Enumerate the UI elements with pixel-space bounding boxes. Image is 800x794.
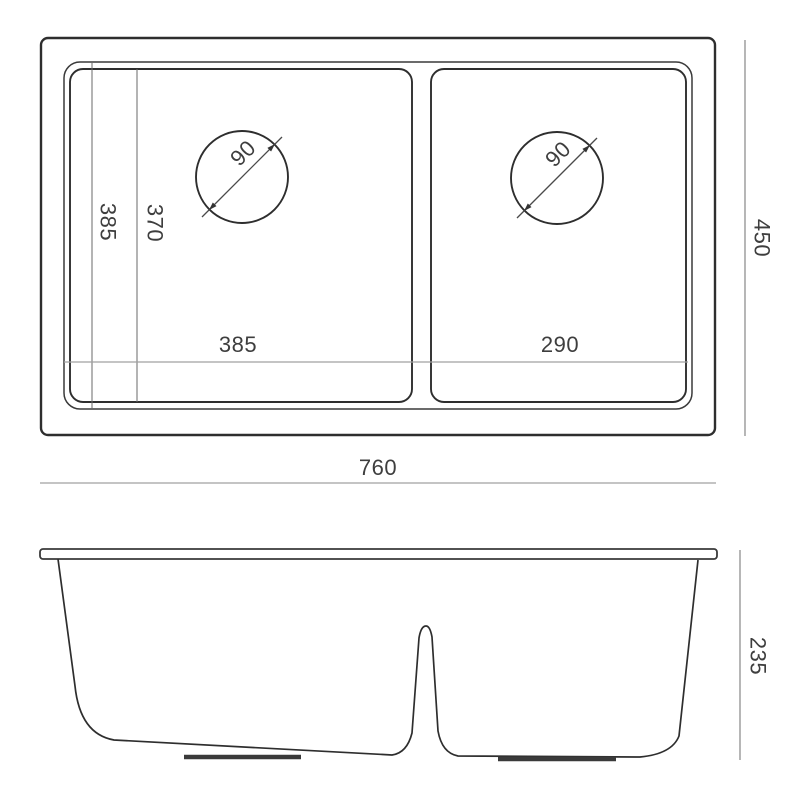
- bowl-depth-label: 370: [143, 204, 168, 242]
- bowl-height-label: 235: [746, 637, 771, 675]
- right-bowl-width-label: 290: [541, 332, 579, 357]
- sink-technical-drawing: 385 370 385 290 90 90 450 760 235: [0, 0, 800, 794]
- overall-depth-label: 450: [750, 219, 775, 257]
- left-drain-diameter-label: 90: [225, 135, 261, 171]
- sink-technical-drawing-page: 385 370 385 290 90 90 450 760 235: [0, 0, 800, 794]
- sink-rim-profile: [40, 549, 717, 559]
- sink-outer-edge: [41, 38, 715, 435]
- overall-width-label: 760: [359, 455, 397, 480]
- inner-depth-label: 385: [96, 203, 121, 241]
- sink-body-profile: [58, 559, 698, 757]
- left-bowl-width-label: 385: [219, 332, 257, 357]
- top-view: 385 370 385 290 90 90 450 760: [40, 38, 775, 483]
- right-drain-diameter-label: 90: [540, 136, 576, 172]
- front-view: 235: [40, 549, 771, 760]
